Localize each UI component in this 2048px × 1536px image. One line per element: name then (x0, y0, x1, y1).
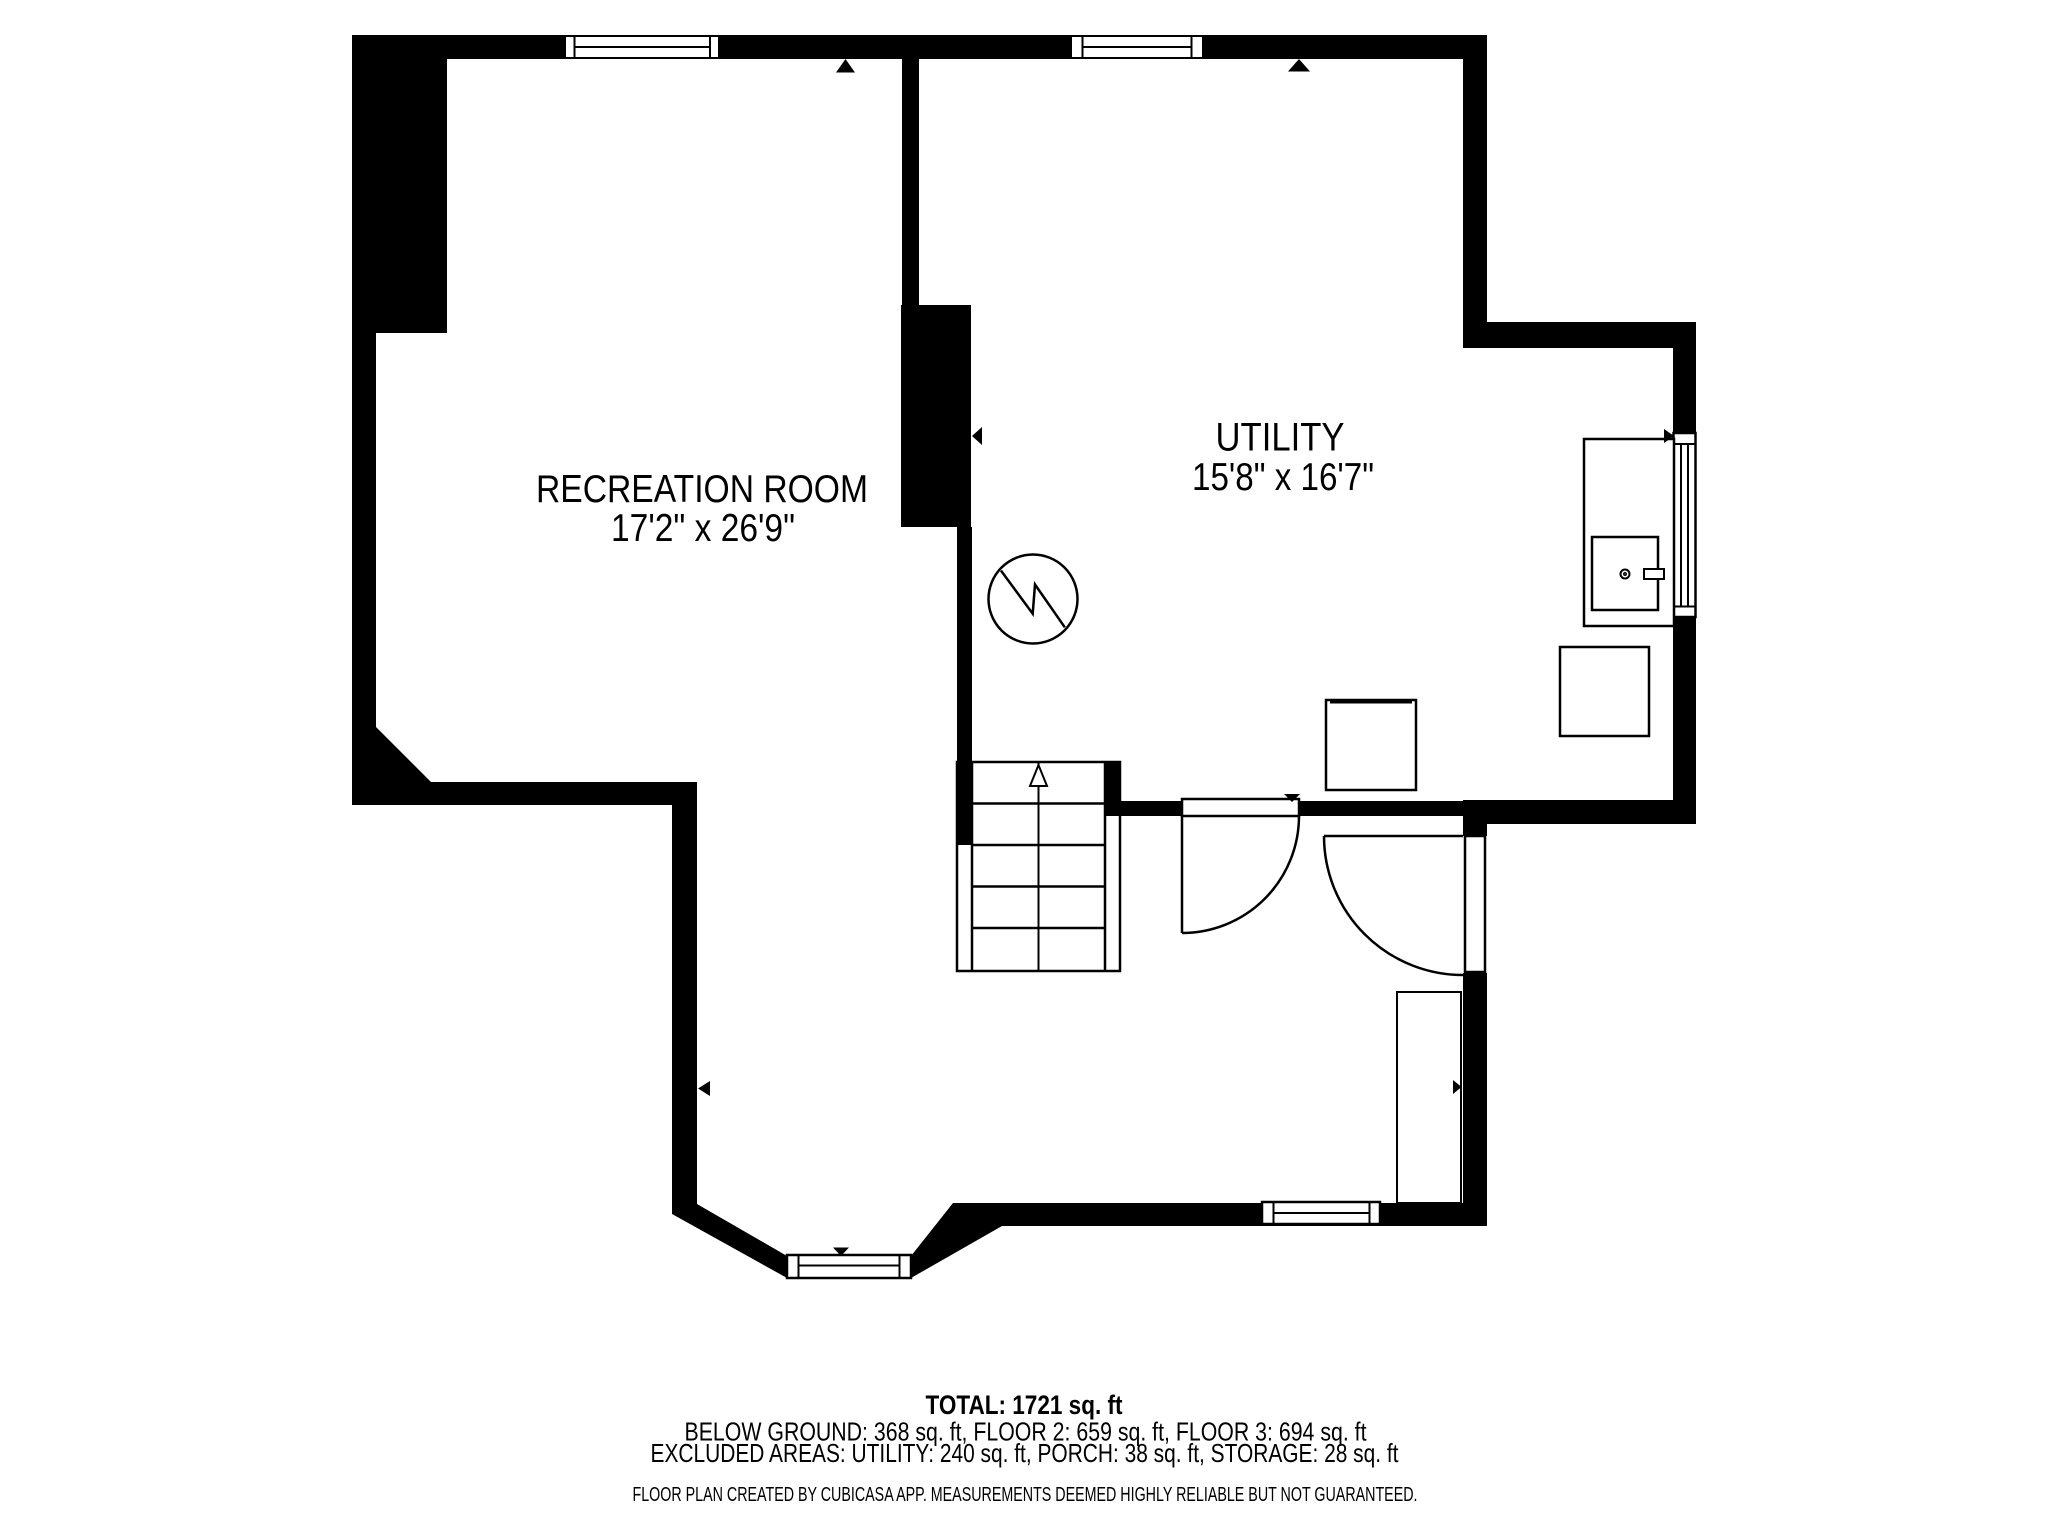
svg-text:RECREATION ROOM: RECREATION ROOM (536, 468, 868, 511)
svg-text:15'8" x 16'7": 15'8" x 16'7" (1192, 456, 1374, 499)
svg-text:UTILITY: UTILITY (1216, 416, 1345, 460)
svg-text:EXCLUDED AREAS: UTILITY: 240 s: EXCLUDED AREAS: UTILITY: 240 sq. ft, POR… (651, 1438, 1400, 1468)
svg-text:TOTAL: 1721 sq. ft: TOTAL: 1721 sq. ft (926, 1390, 1123, 1420)
svg-text:FLOOR PLAN CREATED BY CUBICASA: FLOOR PLAN CREATED BY CUBICASA APP. MEAS… (633, 1483, 1418, 1506)
svg-text:17'2" x 26'9": 17'2" x 26'9" (611, 507, 795, 550)
